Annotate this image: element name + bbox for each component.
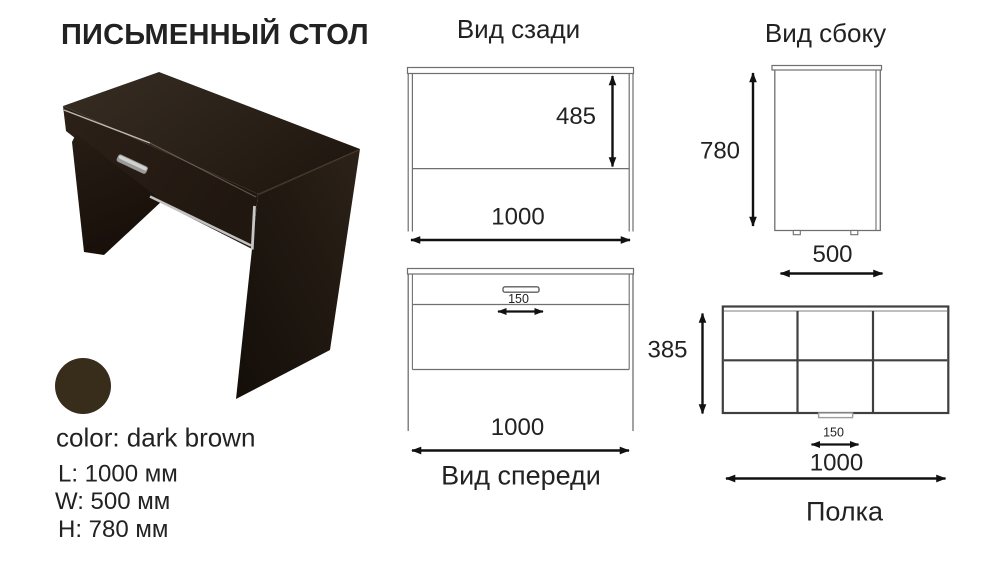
svg-text:150: 150: [823, 426, 844, 440]
svg-text:780: 780: [700, 138, 740, 165]
svg-text:ПИСЬМЕННЫЙ СТОЛ: ПИСЬМЕННЫЙ СТОЛ: [61, 17, 369, 51]
svg-text:W: 500 мм: W: 500 мм: [55, 488, 170, 515]
svg-text:Вид спереди: Вид спереди: [441, 461, 601, 491]
svg-text:color: dark brown: color: dark brown: [56, 423, 255, 453]
svg-text:Вид сбоку: Вид сбоку: [765, 18, 886, 48]
svg-text:485: 485: [556, 103, 596, 130]
svg-text:Вид сзади: Вид сзади: [457, 14, 580, 44]
svg-text:1000: 1000: [491, 204, 544, 231]
svg-text:Полка: Полка: [806, 497, 884, 527]
svg-text:L: 1000 мм: L: 1000 мм: [58, 461, 178, 488]
svg-text:H: 780 мм: H: 780 мм: [58, 516, 168, 543]
svg-text:385: 385: [647, 337, 687, 364]
svg-text:150: 150: [508, 292, 529, 306]
svg-text:500: 500: [812, 241, 852, 268]
svg-text:1000: 1000: [810, 450, 863, 477]
svg-text:1000: 1000: [491, 414, 544, 441]
